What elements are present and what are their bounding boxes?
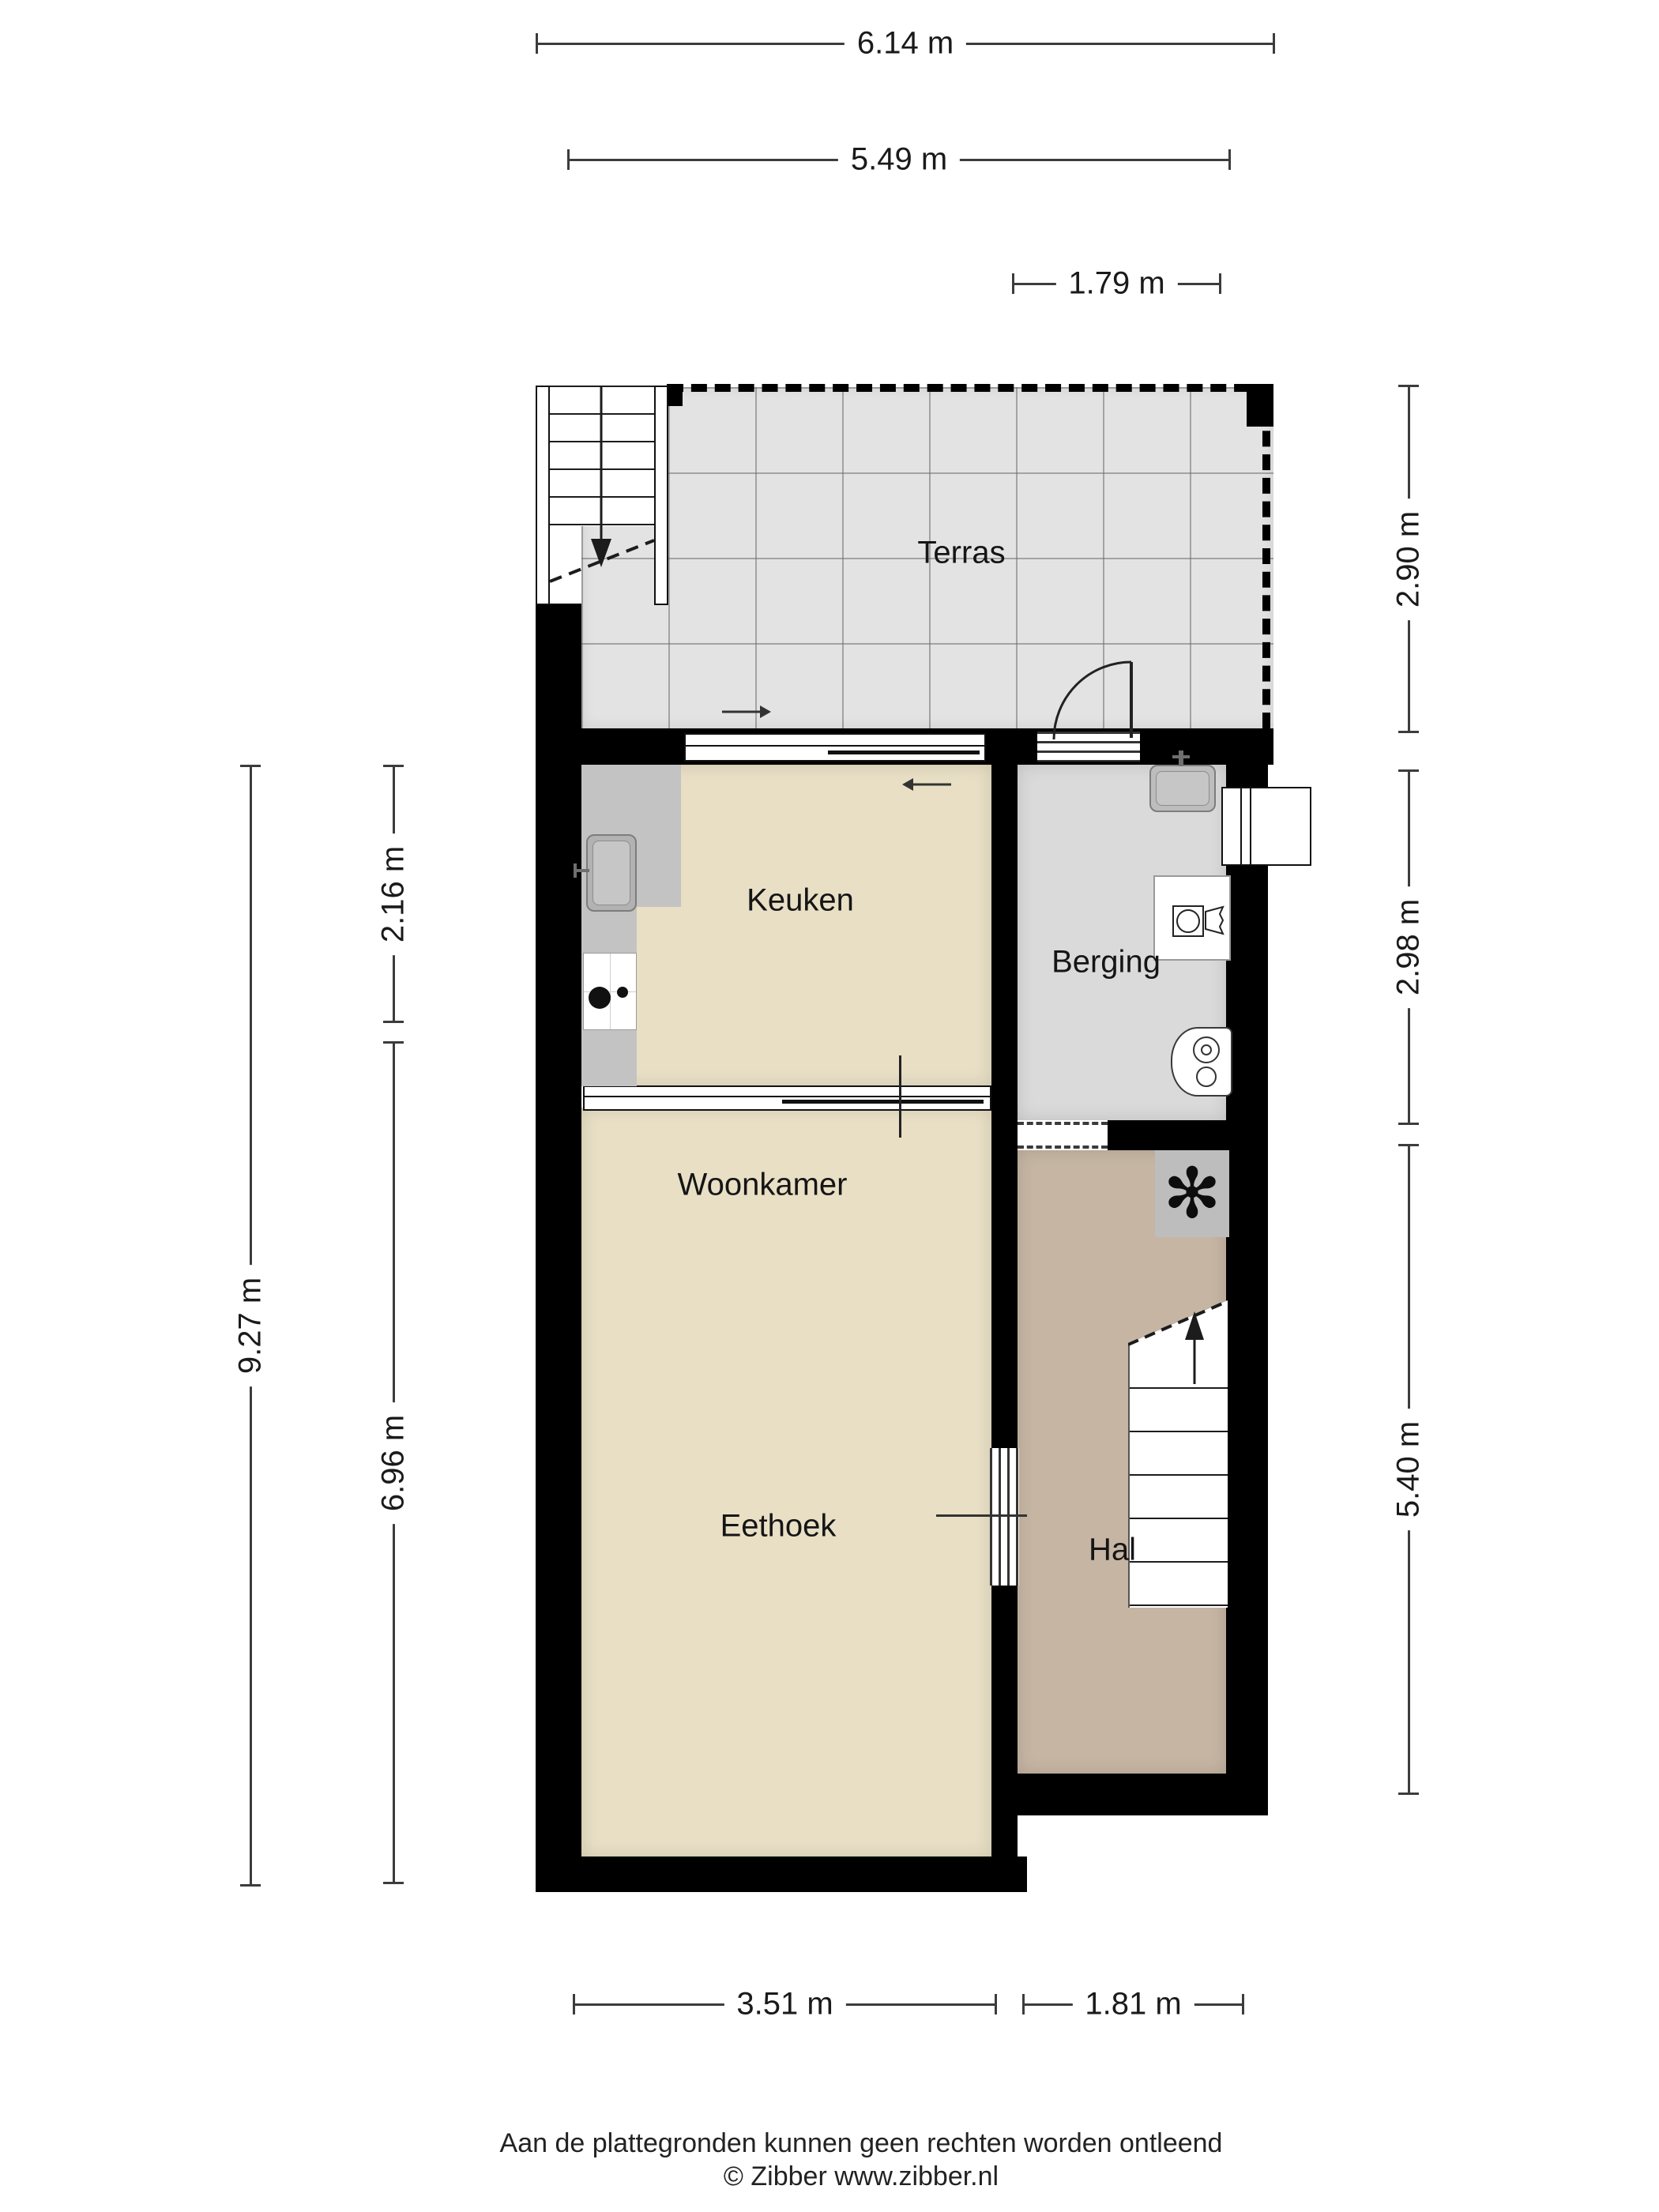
dimension-tick [1398, 385, 1419, 387]
wall-keuken-berging [991, 728, 1018, 1142]
kitchen-sink-icon [586, 834, 637, 912]
slide-direction-left-arrow-icon [902, 774, 953, 795]
dimension-tick [1022, 1994, 1025, 2014]
stove-burner-small [617, 987, 628, 998]
door-swing-icon [1051, 659, 1136, 743]
dimension-tick [1012, 273, 1014, 294]
stove-burner-large [589, 987, 611, 1009]
dimension-tick [383, 765, 404, 767]
dimension-tick [995, 1994, 997, 2014]
wall-right [1226, 728, 1268, 1815]
dimension-tick [1228, 149, 1231, 170]
kitchen-faucet-icon [575, 869, 589, 872]
dimension-label: 2.90 m [1391, 498, 1427, 619]
room-label-hal: Hal [1089, 1533, 1136, 1568]
dimension-left-full: 9.27 m [237, 765, 264, 1887]
dimension-right-berging: 2.98 m [1395, 769, 1422, 1125]
kitchen-faucet-icon [574, 863, 577, 878]
dimension-tick [1242, 1994, 1244, 2014]
dimension-right-terras: 2.90 m [1395, 385, 1422, 733]
dimension-tick [1219, 273, 1221, 294]
terras-boundary-top [668, 384, 1273, 392]
sliding-door-panel [782, 1100, 984, 1104]
dimension-tick [536, 33, 538, 54]
woonkamer-eethoek-floor [581, 1108, 991, 1856]
floorplan-canvas: ✻ Terras Keuken Berging Woonkamer Eethoe… [0, 0, 1659, 2212]
sliding-door-track [686, 745, 984, 747]
footer-copyright: © Zibber www.zibber.nl [71, 2161, 1651, 2192]
dimension-label: 6.14 m [845, 26, 966, 62]
passage-berging-hal [1018, 1122, 1108, 1149]
extractor-fan-icon: ✻ [1163, 1159, 1221, 1228]
sliding-door-guide-line [899, 1055, 901, 1138]
dimension-tick [573, 1994, 575, 2014]
dimension-bottom-hal: 1.81 m [1022, 1991, 1244, 2018]
dimension-tick [1273, 33, 1275, 54]
dimension-label: 1.79 m [1055, 266, 1177, 302]
dimension-label: 5.49 m [838, 142, 960, 178]
dimension-tick [567, 149, 570, 170]
dimension-label: 2.16 m [376, 833, 412, 954]
terras-boundary-right [1262, 384, 1270, 728]
sliding-door-track [585, 1096, 990, 1097]
dimension-label: 1.81 m [1072, 1987, 1194, 2022]
room-label-woonkamer: Woonkamer [678, 1168, 848, 1203]
washer-shelf [1153, 875, 1231, 961]
window-pane-line [1240, 788, 1242, 864]
stair-up-arrow-icon [1128, 1296, 1226, 1398]
door-leaf-line [936, 1514, 1027, 1517]
berging-sink-icon [1149, 765, 1216, 812]
dimension-tick [1398, 1793, 1419, 1795]
dimension-tick [1398, 1144, 1419, 1146]
dimension-label: 2.98 m [1391, 886, 1427, 1008]
dimension-top-right: 1.79 m [1012, 270, 1221, 297]
room-label-keuken: Keuken [747, 883, 854, 919]
sink-basin [592, 841, 630, 905]
staircase-down [536, 384, 668, 607]
room-label-eethoek: Eethoek [720, 1509, 837, 1544]
window-pane-line [1250, 788, 1251, 864]
wall-hal-bottom [991, 1774, 1268, 1815]
berging-window-icon [1221, 787, 1311, 866]
berging-faucet-icon [1172, 755, 1190, 758]
slide-direction-right-arrow-icon [720, 702, 771, 722]
wall-left [536, 604, 581, 1891]
boiler-dial-inner [1201, 1044, 1212, 1055]
wall-berging-hal-stub [1108, 1120, 1226, 1150]
extractor-fan-box: ✻ [1155, 1150, 1229, 1237]
terras-corner-stub-right [1247, 384, 1273, 427]
dimension-tick [1398, 731, 1419, 733]
washing-machine-drum [1176, 909, 1200, 933]
dimension-tick [383, 1882, 404, 1884]
dimension-left-keuken: 2.16 m [380, 765, 407, 1023]
sliding-door-keuken-woonkamer [583, 1085, 991, 1111]
berging-faucet-icon [1179, 750, 1183, 766]
dimension-label: 3.51 m [724, 1987, 845, 2022]
dimension-top-full: 6.14 m [536, 30, 1275, 57]
room-label-berging: Berging [1051, 945, 1161, 980]
dimension-top-inner: 5.49 m [567, 146, 1231, 173]
dimension-left-living: 6.96 m [380, 1041, 407, 1884]
dimension-label: 9.27 m [233, 1265, 269, 1386]
stair-down-arrow-icon [536, 384, 668, 607]
sink-basin [1156, 771, 1209, 806]
dimension-tick [1398, 1123, 1419, 1125]
dimension-tick [383, 1021, 404, 1023]
dimension-label: 6.96 m [376, 1401, 412, 1523]
terras-corner-stub-left [667, 384, 683, 406]
sliding-door-panel [828, 750, 980, 754]
dimension-tick [383, 1041, 404, 1044]
laundry-basket-icon [1204, 905, 1226, 935]
dimension-tick [240, 765, 261, 767]
wall-eethoek-bottom [536, 1856, 1027, 1892]
dimension-tick [240, 1884, 261, 1887]
dimension-right-hal: 5.40 m [1395, 1144, 1422, 1795]
footer-disclaimer: Aan de plattegronden kunnen geen rechten… [71, 2128, 1651, 2159]
dimension-bottom-living: 3.51 m [573, 1991, 997, 2018]
dimension-label: 5.40 m [1391, 1409, 1427, 1530]
room-label-terras: Terras [917, 536, 1005, 571]
stove-icon [583, 953, 637, 1030]
stair-treads [1130, 1387, 1228, 1608]
door-woonkamer-hal [990, 1448, 1019, 1586]
boiler-icon [1171, 1027, 1232, 1097]
dimension-tick [1398, 769, 1419, 772]
sliding-door-terras-keuken [684, 733, 986, 762]
boiler-dial-lower [1196, 1066, 1217, 1087]
